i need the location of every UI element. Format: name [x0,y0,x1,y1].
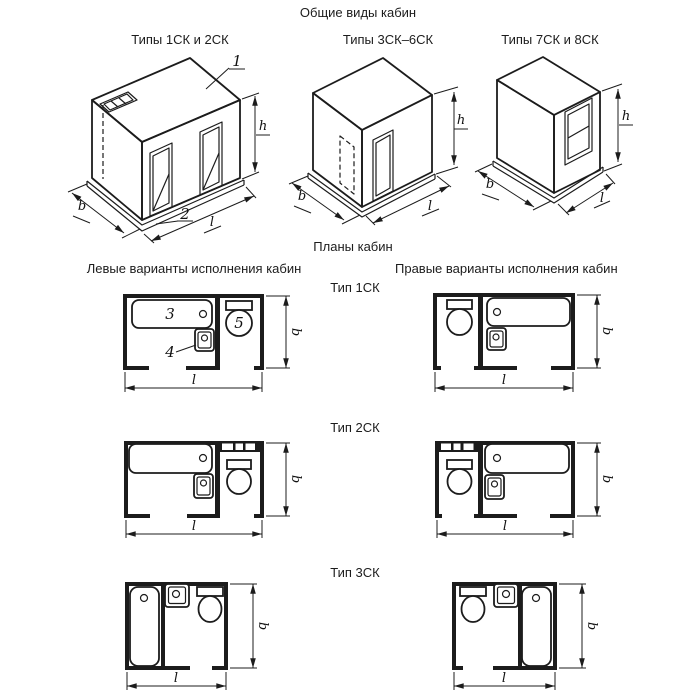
dim-label-l: l [192,519,196,534]
callout-2: 2 [179,205,190,223]
dim-label-b: b [298,189,306,204]
dim-label-l: l [210,215,214,230]
dim-label-l: l [192,373,196,388]
plan-3sk-left: l b [110,575,280,697]
door-opening-2 [200,122,222,195]
door-opening [373,130,393,201]
bathtub-shape [487,298,570,326]
dim-label-l: l [502,671,506,686]
dim-length: l [127,671,226,690]
toilet-shape [197,587,223,622]
dim-length: l [435,372,573,392]
dim-label-b: b [584,622,599,630]
dim-width: b [266,296,303,368]
bathtub-shape [522,587,551,666]
dim-label-b: b [78,199,86,214]
iso-view-types-1sk-2sk: h b l 1 2 [60,52,290,244]
cabin-box [92,58,240,220]
callout-5: 5 [234,314,244,332]
dim-height: h [242,93,270,179]
toilet-shape [460,587,486,622]
plan-3sk-right: l b [440,575,610,697]
plan-2sk-left: l b [110,435,300,545]
callout-ceiling-panel: 1 [206,52,245,89]
type-caption-2sk: Тип 2СК [305,421,405,435]
bathtub-shape [485,444,569,473]
dim-width: b [266,443,303,516]
base-skid [87,180,244,231]
washbasin-shape [165,584,189,607]
plan-1sk-right: l b [425,288,610,400]
dim-label-b: b [288,475,303,483]
dim-width: b [577,295,614,368]
washbasin-shape [494,584,518,607]
iso-view-types-3sk-6sk: h b l [283,52,468,237]
washbasin-shape [485,475,504,499]
washbasin-shape [194,474,213,498]
dim-height: h [602,84,633,171]
type-caption-1sk: Тип 1СК [305,281,405,295]
type-caption-3sk: Тип 3СК [305,566,405,580]
plan-1sk-left: 3 4 5 l b [110,288,300,400]
dim-length: l [454,671,555,690]
dim-length: l [437,519,573,538]
callout-base-panel: 2 [156,205,193,224]
dim-label-l: l [174,671,178,686]
washbasin-shape: 4 [164,329,214,361]
right-variants-caption: Правые варианты исполнения кабин [395,262,615,276]
dim-length: l [125,372,262,392]
dim-length: l [126,519,262,538]
dim-width: b [475,164,551,210]
callout-4: 4 [164,343,175,361]
callout-3: 3 [165,305,175,323]
dim-label-l: l [502,373,506,388]
dim-label-h: h [259,119,267,134]
callout-1: 1 [232,52,242,70]
door-opening-1 [150,143,172,216]
bathtub-shape: 3 [132,300,212,328]
toilet-shape [227,460,251,494]
dim-label-b: b [599,475,614,483]
dim-label-l: l [503,519,507,534]
iso-caption-7sk-8sk: Типы 7СК и 8СК [450,33,650,47]
dim-width: b [68,184,140,238]
general-views-title: Общие виды кабин [258,6,458,20]
dim-width: b [289,176,360,224]
toilet-shape [447,300,472,335]
dim-width: b [230,584,270,668]
left-variants-caption: Левые варианты исполнения кабин [84,262,304,276]
drawing-sheet: Общие виды кабин Типы 1СК и 2СК Типы 3СК… [0,0,700,700]
dim-label-b: b [599,327,614,335]
bathtub-shape [130,587,159,666]
iso-caption-1sk-2sk: Типы 1СК и 2СК [80,33,280,47]
plan-2sk-right: l b [425,435,610,545]
dim-width: b [577,443,614,516]
hidden-door-opening [340,136,354,194]
iso-view-types-7sk-8sk: h b l [463,52,643,232]
bathtub-shape [129,444,212,473]
base-skid [493,161,603,203]
dim-label-b: b [288,328,303,336]
dim-width: b [559,584,599,668]
toilet-shape: 5 [226,301,252,336]
dim-label-b: b [486,177,494,192]
washbasin-shape [487,328,506,350]
dim-label-h: h [622,109,630,124]
toilet-shape [447,460,472,494]
dim-label-b: b [255,622,270,630]
